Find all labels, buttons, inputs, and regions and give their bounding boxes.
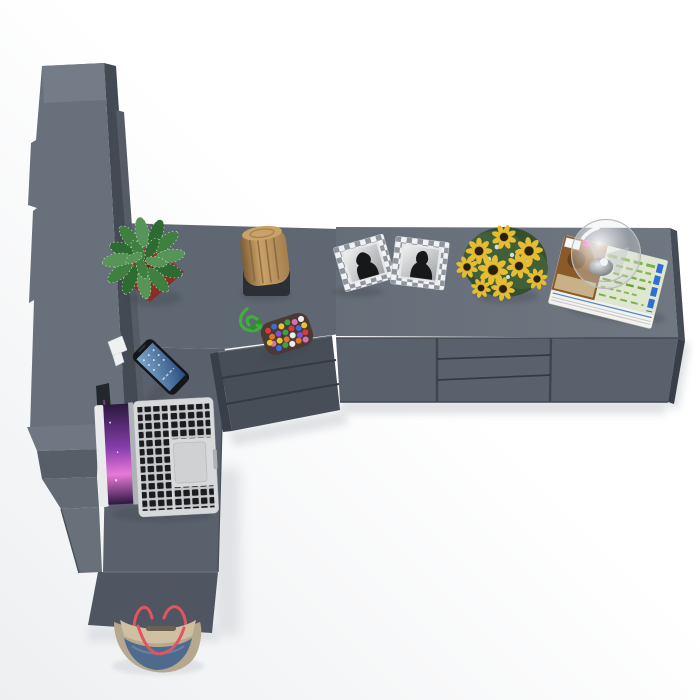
laptop <box>94 397 220 519</box>
sideboard-front <box>336 338 678 402</box>
photo-frame-right <box>390 236 449 290</box>
glass-globe-lamp <box>572 220 641 289</box>
door-gap-right <box>550 338 551 402</box>
laptop-trackpad <box>173 442 207 484</box>
scene-svg: Top-down 3D render of a dark gray L-shap… <box>0 0 700 700</box>
laptop-screen <box>103 404 133 505</box>
render-canvas: Top-down 3D render of a dark gray L-shap… <box>0 0 700 700</box>
laptop-keyboard <box>137 406 172 511</box>
wood-stump <box>238 223 291 296</box>
